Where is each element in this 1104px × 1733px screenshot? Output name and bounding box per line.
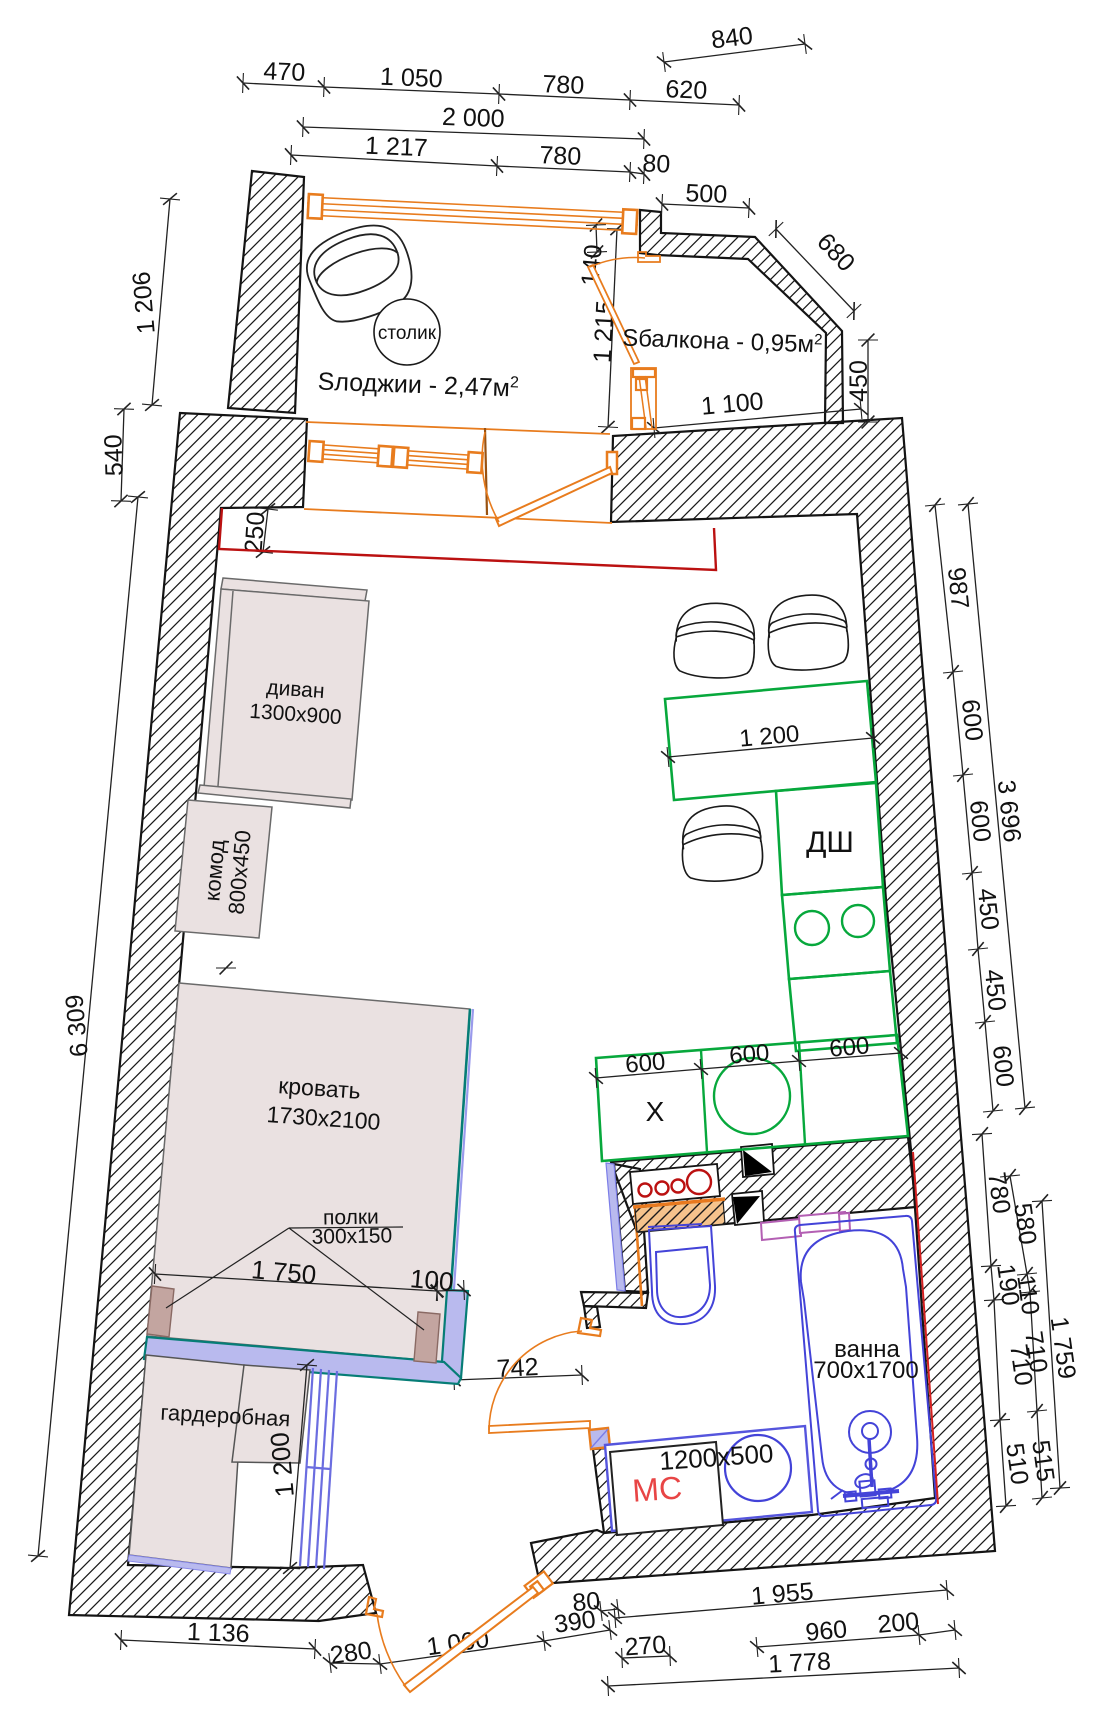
svg-text:780: 780 xyxy=(542,70,585,100)
svg-text:1 217: 1 217 xyxy=(364,132,428,163)
svg-text:250: 250 xyxy=(240,511,271,555)
svg-text:600: 600 xyxy=(964,799,996,843)
svg-text:ДШ: ДШ xyxy=(806,826,854,859)
svg-text:столик: столик xyxy=(378,323,437,344)
svg-text:600: 600 xyxy=(956,698,988,742)
svg-text:2 000: 2 000 xyxy=(442,103,506,133)
svg-text:1 050: 1 050 xyxy=(379,63,443,94)
svg-text:Sлоджии - 2,47м2: Sлоджии - 2,47м2 xyxy=(317,368,519,403)
svg-text:600: 600 xyxy=(624,1048,666,1078)
svg-text:1 955: 1 955 xyxy=(750,1577,815,1610)
svg-text:540: 540 xyxy=(99,434,128,477)
svg-text:200: 200 xyxy=(876,1607,920,1639)
svg-text:Х: Х xyxy=(646,1096,665,1127)
svg-text:6 309: 6 309 xyxy=(60,993,93,1058)
svg-text:620: 620 xyxy=(665,75,708,105)
svg-text:Sбалкона - 0,95м2: Sбалкона - 0,95м2 xyxy=(622,325,823,359)
svg-text:840: 840 xyxy=(710,22,755,55)
svg-text:680: 680 xyxy=(811,228,860,278)
svg-text:1 778: 1 778 xyxy=(768,1647,832,1678)
svg-text:МС: МС xyxy=(631,1469,683,1508)
svg-text:780: 780 xyxy=(539,141,582,171)
svg-text:960: 960 xyxy=(804,1615,848,1647)
svg-text:100: 100 xyxy=(409,1263,455,1297)
svg-text:742: 742 xyxy=(496,1353,539,1383)
svg-text:1 100: 1 100 xyxy=(700,387,765,420)
svg-text:300х150: 300х150 xyxy=(311,1224,392,1248)
svg-text:3 696: 3 696 xyxy=(992,779,1026,844)
svg-text:600: 600 xyxy=(987,1044,1019,1088)
svg-text:диван: диван xyxy=(266,676,326,703)
svg-text:700х1700: 700х1700 xyxy=(813,1357,918,1384)
svg-text:450: 450 xyxy=(972,887,1004,931)
svg-text:987: 987 xyxy=(942,566,974,610)
svg-text:1 200: 1 200 xyxy=(738,720,800,752)
svg-text:600: 600 xyxy=(828,1032,870,1062)
svg-text:450: 450 xyxy=(979,968,1011,1012)
svg-text:515: 515 xyxy=(1026,1438,1060,1483)
svg-text:600: 600 xyxy=(728,1039,770,1069)
svg-text:280: 280 xyxy=(328,1636,373,1670)
svg-text:470: 470 xyxy=(263,57,306,87)
svg-text:500: 500 xyxy=(685,179,728,209)
svg-text:450: 450 xyxy=(845,360,873,402)
svg-text:270: 270 xyxy=(624,1631,668,1662)
svg-text:110: 110 xyxy=(1011,1273,1044,1316)
svg-text:1 206: 1 206 xyxy=(127,270,160,335)
svg-text:80: 80 xyxy=(571,1587,601,1617)
svg-text:80: 80 xyxy=(642,149,671,178)
svg-text:1 750: 1 750 xyxy=(250,1254,317,1290)
svg-text:1 200: 1 200 xyxy=(264,1431,300,1498)
svg-text:1 136: 1 136 xyxy=(187,1618,251,1648)
